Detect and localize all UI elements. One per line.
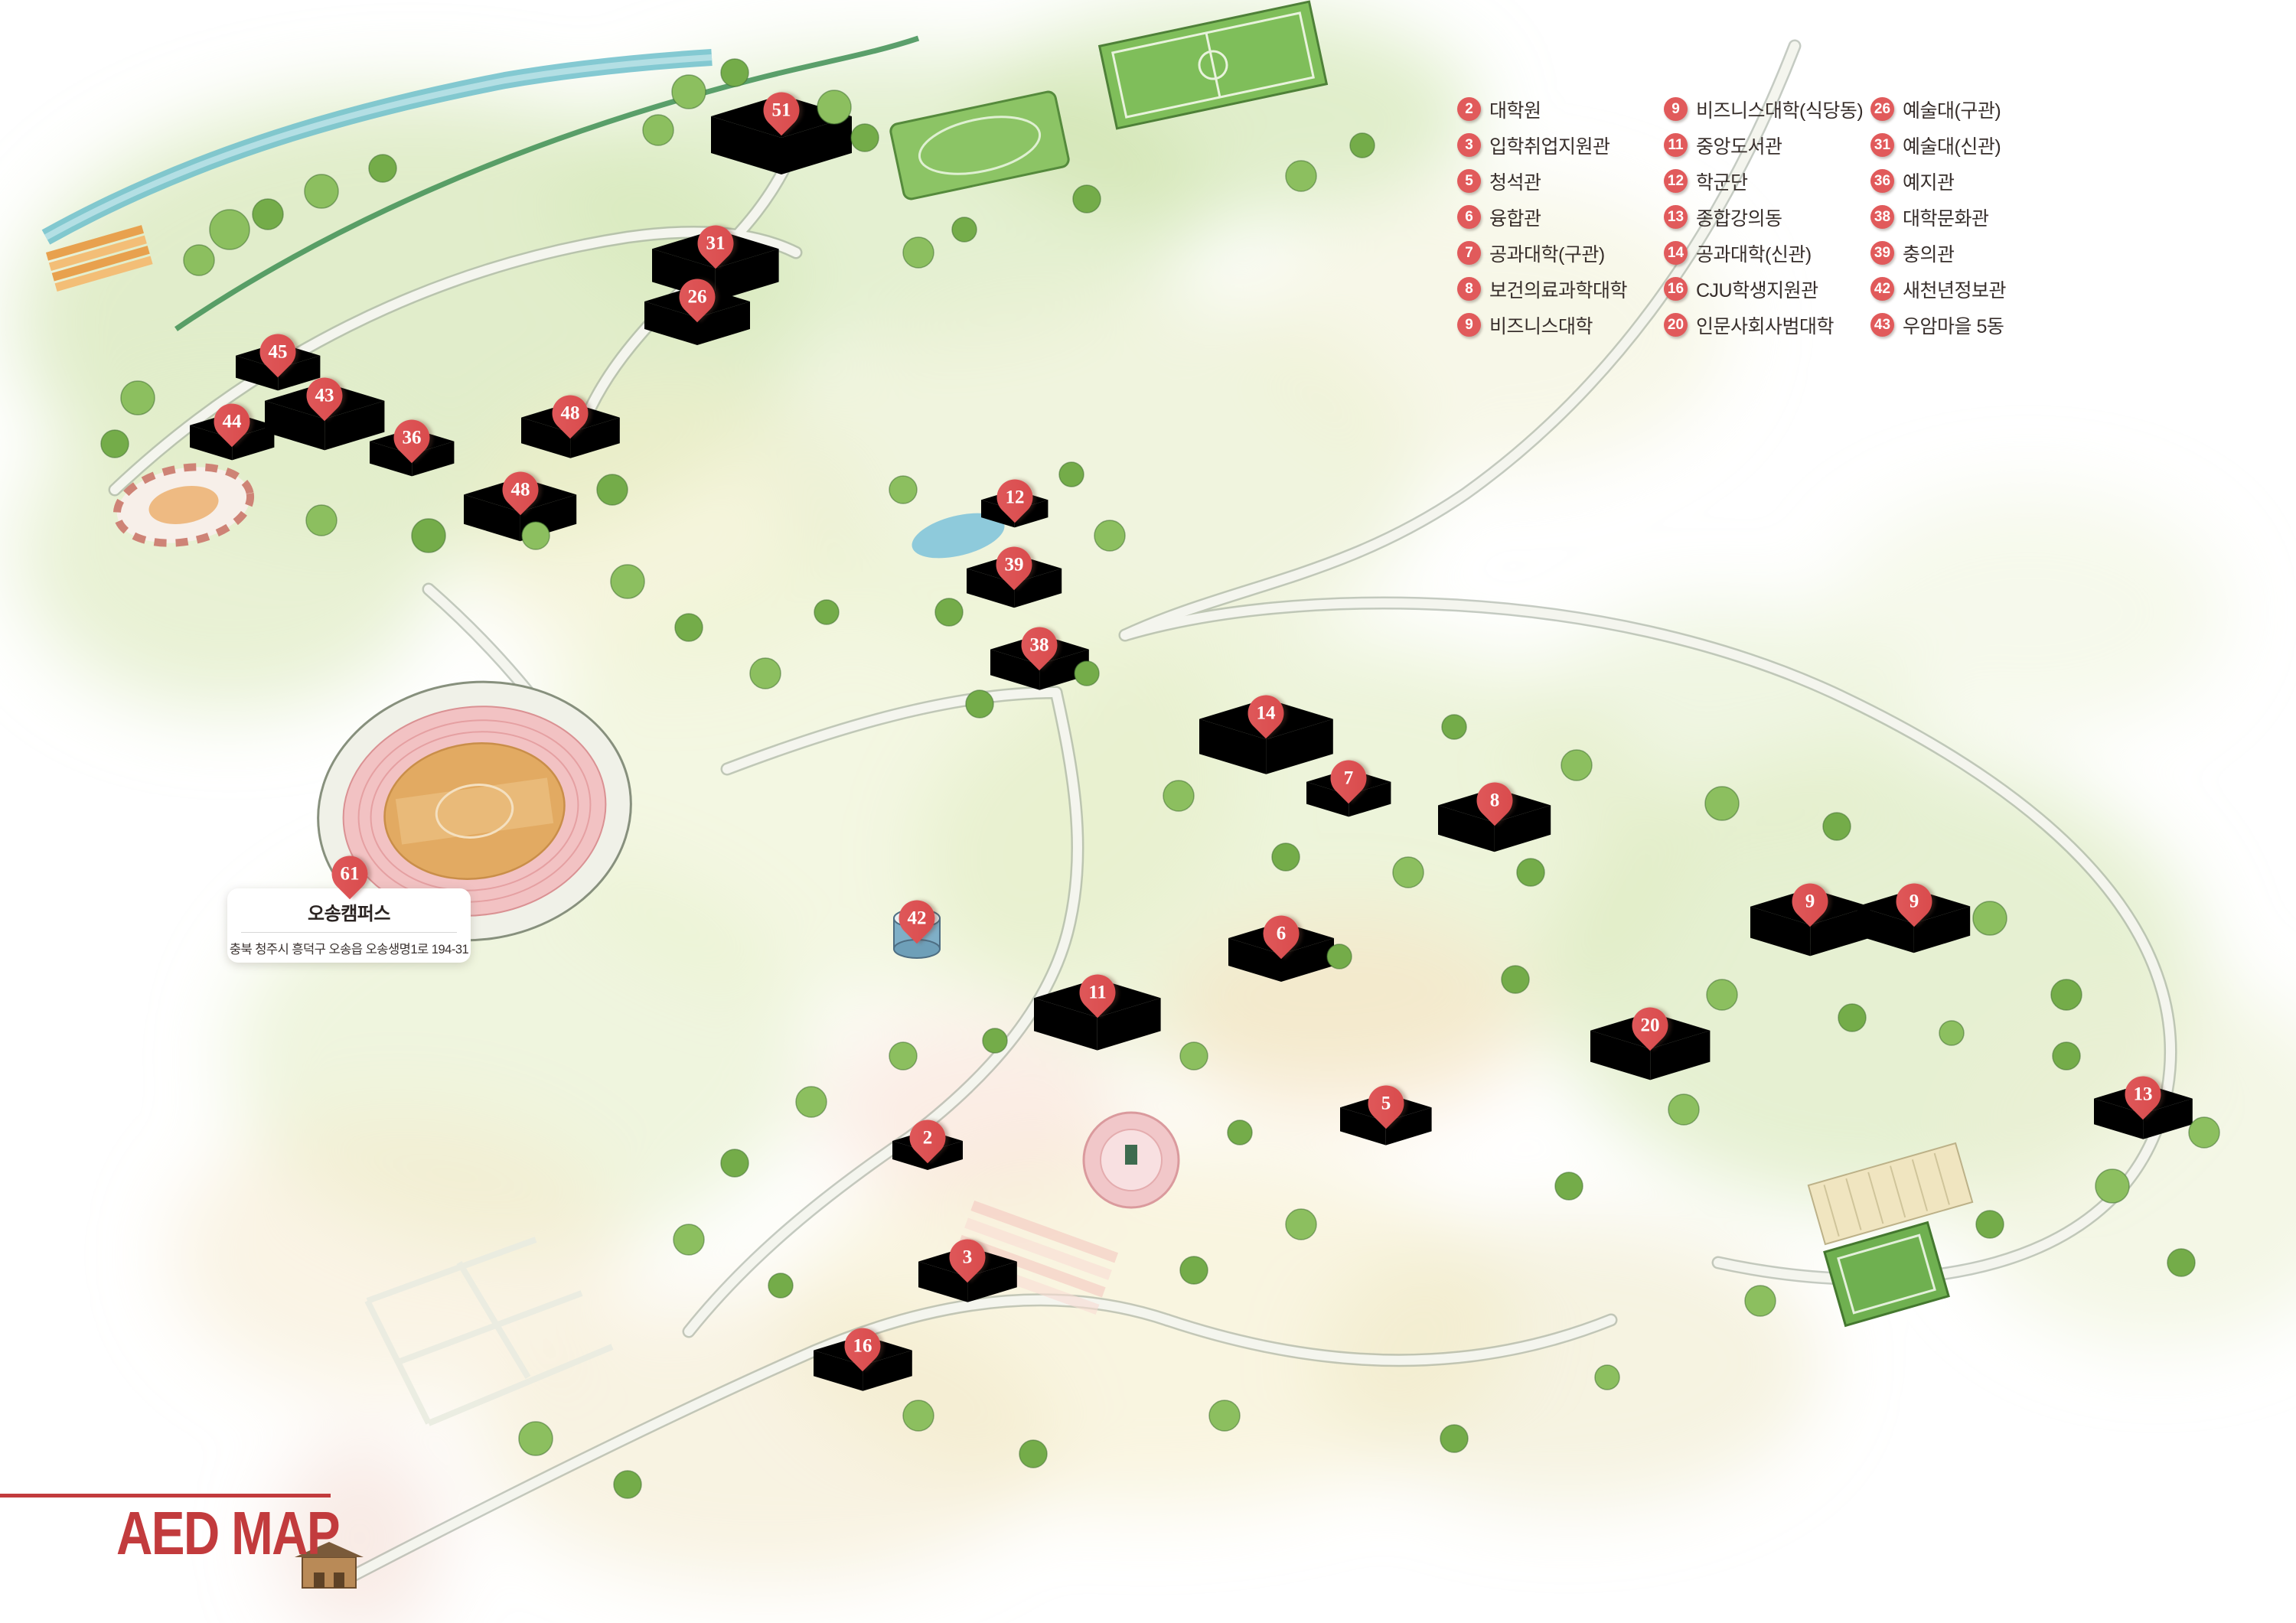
legend-item: 14 공과대학(신관)	[1664, 235, 1870, 271]
legend-label: 공과대학(신관)	[1696, 240, 1812, 267]
pin-number: 36	[394, 420, 430, 456]
map-pin[interactable]: 2	[902, 1113, 953, 1163]
title-rule	[0, 1494, 331, 1498]
legend-number: 42	[1874, 281, 1890, 298]
legend-number: 5	[1465, 173, 1473, 190]
legend-number-badge: 13	[1664, 205, 1688, 229]
legend-number: 6	[1465, 209, 1473, 226]
map-pin[interactable]: 51	[756, 85, 807, 135]
legend-number-badge: 42	[1870, 277, 1894, 301]
pin-number: 11	[1080, 975, 1116, 1011]
legend-label: 청석관	[1489, 168, 1541, 195]
legend-number-badge: 26	[1870, 97, 1894, 121]
legend-number-badge: 7	[1457, 241, 1481, 265]
map-pin[interactable]: 16	[837, 1321, 888, 1371]
page-title: AED MAP	[116, 1498, 339, 1569]
legend-number: 3	[1465, 137, 1473, 154]
legend-number-badge: 14	[1664, 241, 1688, 265]
map-pin[interactable]: 61	[325, 849, 375, 899]
map-pin[interactable]: 48	[495, 464, 546, 515]
legend-number-badge: 3	[1457, 133, 1481, 157]
map-pin[interactable]: 7	[1323, 753, 1374, 803]
pin-number: 6	[1264, 916, 1300, 952]
legend-number-badge: 16	[1664, 277, 1688, 301]
pin-number: 8	[1477, 783, 1513, 819]
legend-item: 5 청석관	[1457, 163, 1664, 199]
legend-number: 13	[1668, 209, 1684, 226]
map-pin[interactable]: 48	[545, 388, 595, 438]
legend-item: 2 대학원	[1457, 91, 1664, 127]
legend-number-badge: 8	[1457, 277, 1481, 301]
pin-number: 44	[214, 404, 250, 440]
legend-number: 14	[1668, 245, 1684, 262]
legend-item: 3 입학취업지원관	[1457, 127, 1664, 163]
legend-number: 7	[1465, 245, 1473, 262]
map-pin[interactable]: 9	[1889, 876, 1939, 927]
legend-label: 새천년정보관	[1903, 275, 2006, 303]
map-pin[interactable]: 6	[1256, 908, 1306, 959]
pin-number: 43	[307, 378, 343, 414]
legend-item: 13 종합강의동	[1664, 199, 1870, 235]
map-pin[interactable]: 20	[1625, 1000, 1675, 1051]
legend-number-badge: 20	[1664, 313, 1688, 337]
pin-number: 39	[996, 547, 1032, 583]
legend-number-badge: 11	[1664, 133, 1688, 157]
pin-number: 51	[764, 93, 800, 129]
legend-item: 42 새천년정보관	[1870, 271, 2077, 307]
legend-number: 11	[1668, 137, 1683, 154]
campus-map-page: 51 31 26 45 43 44 48 36 48 12 39 38 14 7…	[0, 0, 2296, 1623]
legend-item: 20 인문사회사범대학	[1664, 307, 1870, 343]
map-pin[interactable]: 45	[253, 327, 303, 377]
map-pin[interactable]: 13	[2118, 1069, 2168, 1119]
map-pin[interactable]: 38	[1014, 620, 1065, 670]
pin-number: 14	[1248, 696, 1284, 732]
legend-number: 38	[1874, 209, 1890, 226]
pin-number: 12	[997, 480, 1033, 516]
legend-label: 충의관	[1903, 240, 1955, 267]
legend-label: 비즈니스대학	[1489, 311, 1593, 339]
legend-item: 12 학군단	[1664, 163, 1870, 199]
legend-number: 26	[1874, 101, 1890, 118]
map-pin[interactable]: 8	[1469, 775, 1520, 826]
legend-number-badge: 36	[1870, 169, 1894, 193]
legend-number: 36	[1874, 173, 1890, 190]
pin-number: 42	[899, 901, 935, 937]
legend-number: 12	[1668, 173, 1684, 190]
legend-number: 8	[1465, 281, 1473, 298]
legend-label: 중앙도서관	[1696, 132, 1782, 159]
pin-number: 9	[1792, 884, 1828, 920]
legend: 2 대학원 3 입학취업지원관 5 청석관 6 융합관 7 공과대학(구관) 8…	[1457, 91, 2077, 343]
legend-label: 비즈니스대학(식당동)	[1696, 96, 1863, 123]
map-pin[interactable]: 26	[672, 272, 722, 322]
map-pin[interactable]: 3	[942, 1232, 993, 1282]
legend-number: 16	[1668, 281, 1684, 298]
legend-number: 20	[1668, 317, 1684, 334]
legend-item: 43 우암마을 5동	[1870, 307, 2077, 343]
legend-label: 우암마을 5동	[1903, 311, 2004, 339]
legend-label: 예지관	[1903, 168, 1955, 195]
legend-label: 인문사회사범대학	[1696, 311, 1834, 339]
legend-number: 2	[1465, 101, 1473, 118]
legend-item: 36 예지관	[1870, 163, 2077, 199]
legend-item: 6 융합관	[1457, 199, 1664, 235]
pin-number: 31	[698, 226, 734, 262]
pin-number: 16	[845, 1328, 881, 1364]
legend-column: 2 대학원 3 입학취업지원관 5 청석관 6 융합관 7 공과대학(구관) 8…	[1457, 91, 1664, 343]
pin-number: 48	[503, 472, 539, 508]
map-pin[interactable]: 11	[1072, 967, 1123, 1018]
legend-label: 예술대(구관)	[1903, 96, 2001, 123]
pin-number: 20	[1632, 1008, 1668, 1044]
legend-label: CJU학생지원관	[1696, 275, 1818, 303]
legend-number-badge: 5	[1457, 169, 1481, 193]
legend-label: 대학문화관	[1903, 204, 1989, 231]
map-pin[interactable]: 12	[990, 472, 1040, 523]
pin-number: 2	[910, 1120, 946, 1156]
legend-number-badge: 12	[1664, 169, 1688, 193]
legend-number-badge: 39	[1870, 241, 1894, 265]
map-pin[interactable]: 31	[690, 218, 741, 269]
pin-number: 45	[260, 334, 296, 370]
legend-label: 공과대학(구관)	[1489, 240, 1605, 267]
legend-item: 11 중앙도서관	[1664, 127, 1870, 163]
legend-label: 종합강의동	[1696, 204, 1782, 231]
map-pin[interactable]: 39	[989, 539, 1039, 590]
pin-number: 5	[1368, 1086, 1404, 1122]
pin-number: 61	[332, 856, 368, 892]
legend-label: 융합관	[1489, 204, 1541, 231]
map-pin[interactable]: 14	[1241, 688, 1291, 738]
map-pin[interactable]: 9	[1785, 876, 1835, 927]
legend-number: 31	[1874, 137, 1890, 154]
legend-number: 9	[1465, 317, 1473, 334]
legend-item: 16 CJU학생지원관	[1664, 271, 1870, 307]
legend-item: 8 보건의료과학대학	[1457, 271, 1664, 307]
legend-item: 26 예술대(구관)	[1870, 91, 2077, 127]
legend-label: 입학취업지원관	[1489, 132, 1610, 159]
legend-number-badge: 6	[1457, 205, 1481, 229]
pin-number: 38	[1022, 627, 1058, 663]
pin-number: 48	[553, 396, 589, 432]
map-pin[interactable]: 44	[207, 396, 257, 447]
legend-number: 39	[1874, 245, 1890, 262]
legend-number: 43	[1874, 317, 1890, 334]
legend-number-badge: 31	[1870, 133, 1894, 157]
legend-item: 7 공과대학(구관)	[1457, 235, 1664, 271]
legend-number-badge: 38	[1870, 205, 1894, 229]
map-pin[interactable]: 43	[299, 370, 350, 421]
legend-number-badge: 9	[1457, 313, 1481, 337]
legend-label: 보건의료과학대학	[1489, 275, 1627, 303]
legend-number-badge: 2	[1457, 97, 1481, 121]
legend-item: 38 대학문화관	[1870, 199, 2077, 235]
pin-number: 7	[1331, 761, 1367, 797]
legend-item: 9 비즈니스대학(식당동)	[1664, 91, 1870, 127]
legend-label: 학군단	[1696, 168, 1748, 195]
legend-label: 예술대(신관)	[1903, 132, 2001, 159]
legend-number-badge: 43	[1870, 313, 1894, 337]
legend-column: 26 예술대(구관) 31 예술대(신관) 36 예지관 38 대학문화관 39…	[1870, 91, 2077, 343]
pin-number: 26	[680, 279, 716, 315]
legend-item: 39 충의관	[1870, 235, 2077, 271]
map-pin[interactable]: 5	[1361, 1078, 1411, 1129]
legend-item: 9 비즈니스대학	[1457, 307, 1664, 343]
pin-number: 3	[950, 1240, 986, 1276]
legend-number: 9	[1671, 101, 1680, 118]
legend-column: 9 비즈니스대학(식당동) 11 중앙도서관 12 학군단 13 종합강의동 1…	[1664, 91, 1870, 343]
pin-number: 9	[1896, 884, 1932, 920]
map-pin[interactable]: 42	[892, 893, 942, 943]
legend-number-badge: 9	[1664, 97, 1688, 121]
pin-number: 13	[2125, 1077, 2161, 1113]
legend-item: 31 예술대(신관)	[1870, 127, 2077, 163]
legend-label: 대학원	[1489, 96, 1541, 123]
map-pin[interactable]: 36	[386, 412, 437, 463]
